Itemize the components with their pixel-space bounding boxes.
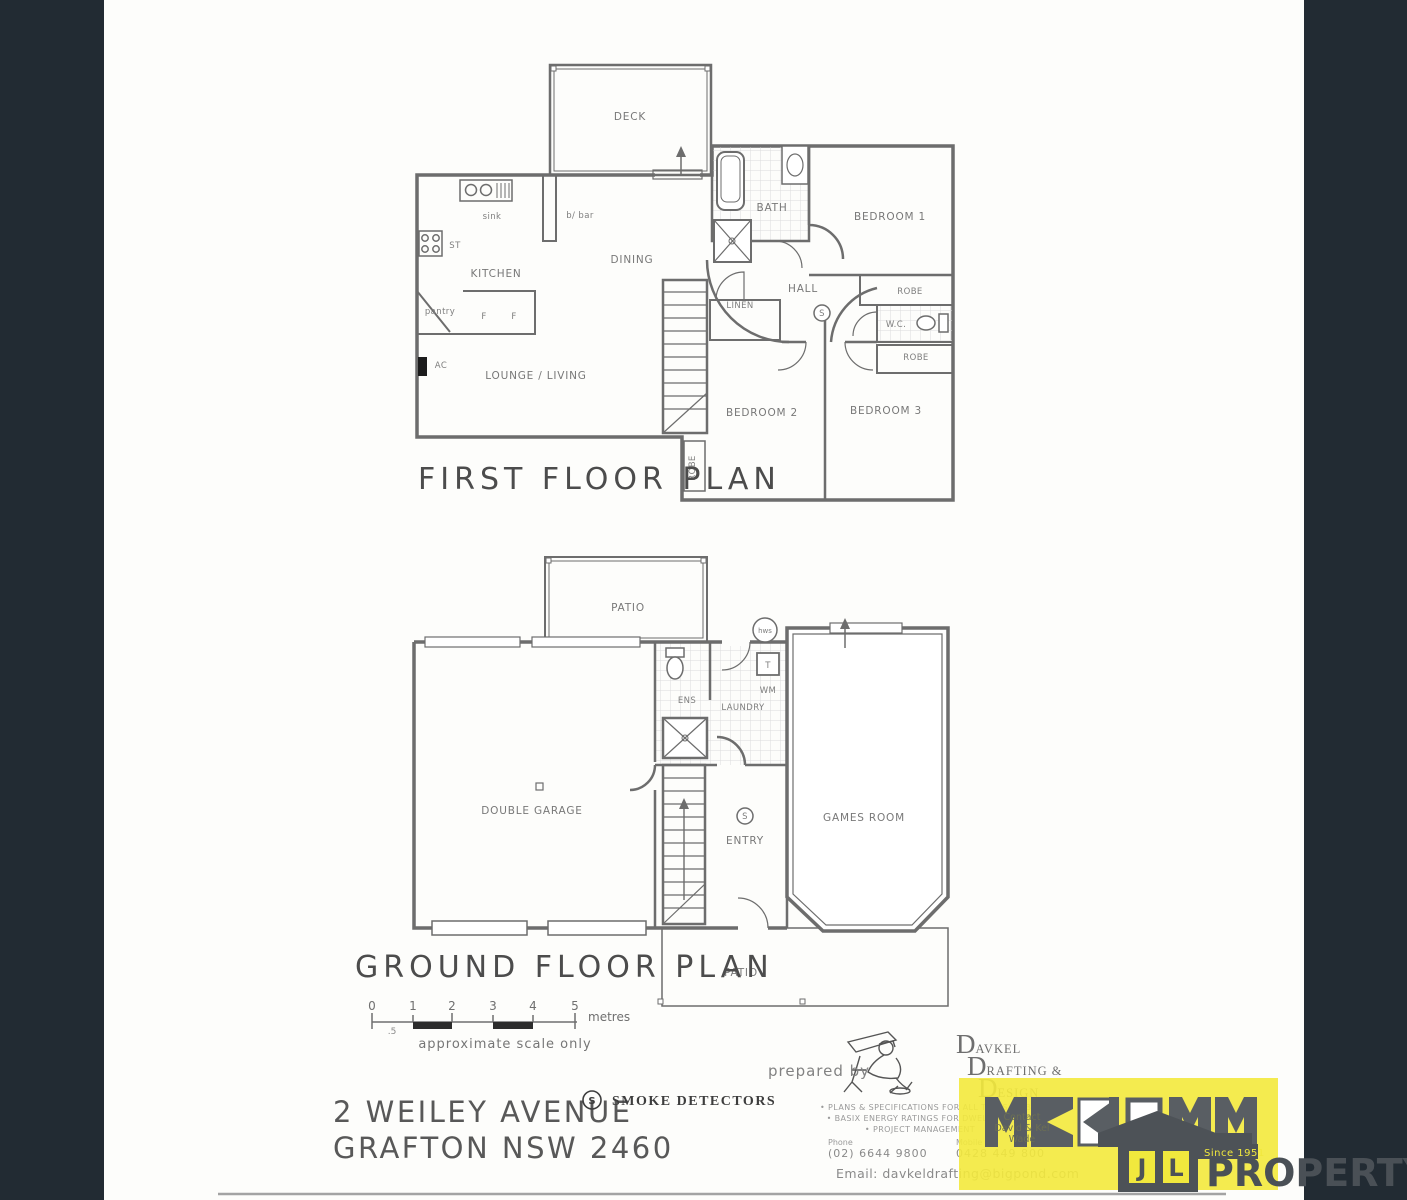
mckimm-jl-property-logo: Contact David & Kel Wade J L Since 1951 …: [0, 0, 1407, 1200]
contact-line-2: David & Kel: [994, 1123, 1049, 1134]
property-wordmark: PROPERTY: [1206, 1151, 1407, 1195]
scanned-floorplan-page: { "first_floor": { "title": "FIRST FLOOR…: [0, 0, 1407, 1200]
jl-letter-l: L: [1168, 1154, 1183, 1182]
jl-letter-j: J: [1136, 1154, 1147, 1182]
contact-line-3: Wade: [1009, 1134, 1036, 1145]
contact-line-1: Contact: [1004, 1112, 1041, 1123]
